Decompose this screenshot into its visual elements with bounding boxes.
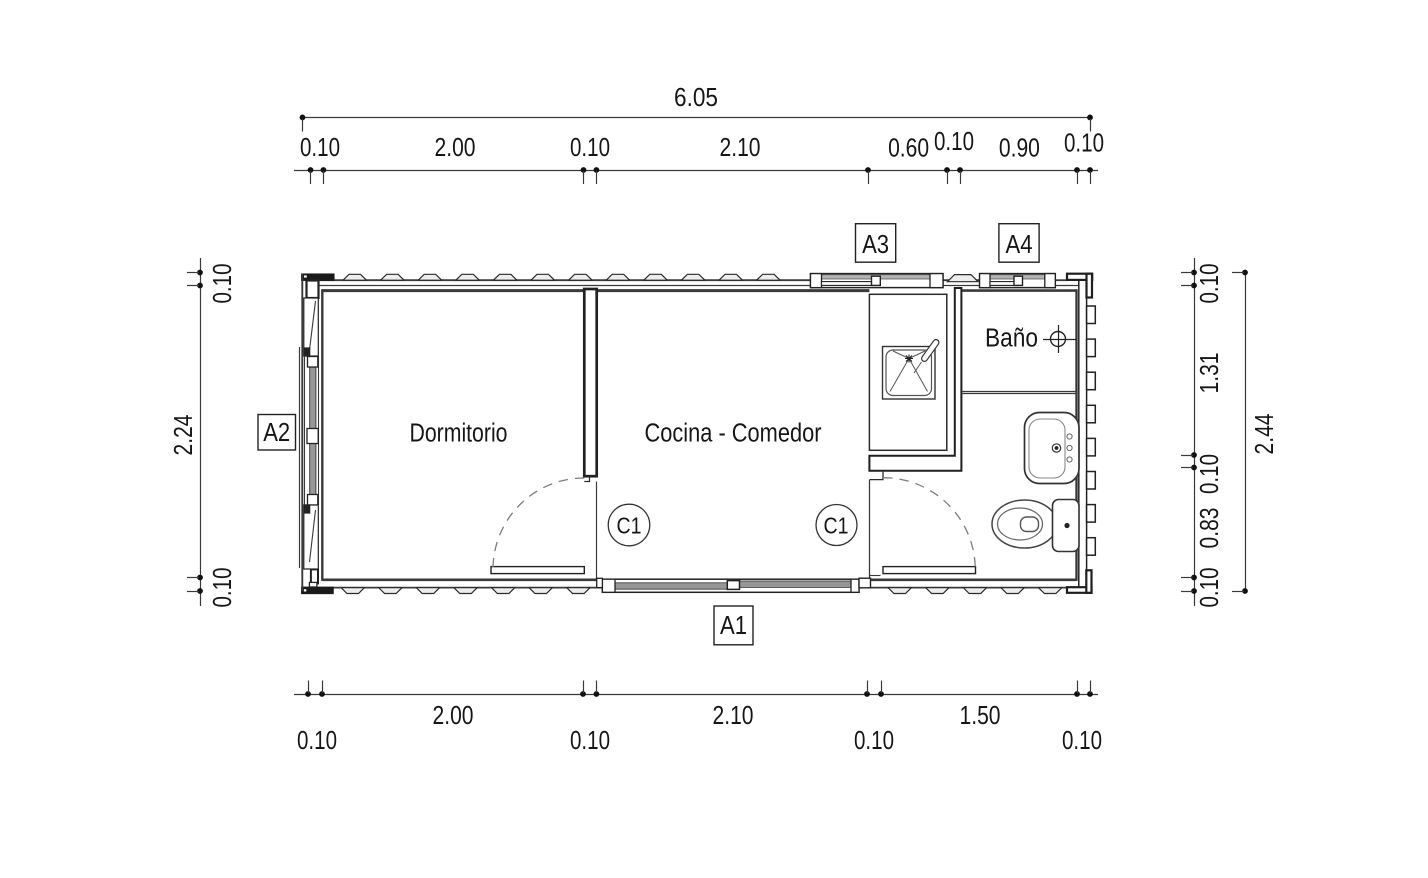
svg-text:2.24: 2.24	[170, 415, 198, 456]
svg-text:0.10: 0.10	[209, 568, 237, 608]
svg-text:0.10: 0.10	[570, 134, 610, 162]
svg-text:0.10: 0.10	[1196, 264, 1224, 304]
svg-text:0.60: 0.60	[888, 135, 929, 163]
svg-text:A4: A4	[1006, 231, 1033, 259]
svg-text:6.05: 6.05	[674, 84, 718, 112]
svg-text:Baño: Baño	[985, 325, 1038, 353]
svg-text:0.10: 0.10	[570, 727, 610, 755]
svg-text:1.50: 1.50	[960, 702, 1001, 730]
svg-text:0.83: 0.83	[1196, 508, 1224, 549]
svg-text:2.10: 2.10	[720, 134, 761, 162]
svg-text:0.90: 0.90	[999, 135, 1040, 163]
svg-text:2.10: 2.10	[713, 702, 754, 730]
svg-text:A2: A2	[263, 419, 290, 447]
svg-text:0.10: 0.10	[1196, 454, 1224, 494]
svg-text:A3: A3	[862, 231, 889, 259]
svg-text:0.10: 0.10	[1062, 727, 1102, 755]
svg-text:2.00: 2.00	[435, 134, 476, 162]
svg-text:0.10: 0.10	[934, 128, 974, 156]
svg-text:1.31: 1.31	[1196, 353, 1224, 394]
svg-text:Cocina - Comedor: Cocina - Comedor	[645, 420, 822, 448]
svg-text:2.44: 2.44	[1251, 414, 1279, 455]
svg-text:0.10: 0.10	[1196, 568, 1224, 608]
svg-text:Dormitorio: Dormitorio	[410, 420, 508, 448]
svg-text:C1: C1	[617, 513, 642, 539]
svg-text:2.00: 2.00	[433, 702, 474, 730]
svg-text:C1: C1	[824, 513, 849, 539]
svg-text:0.10: 0.10	[854, 727, 894, 755]
svg-text:A1: A1	[720, 612, 747, 640]
svg-text:0.10: 0.10	[209, 264, 237, 304]
svg-text:0.10: 0.10	[1064, 130, 1104, 158]
svg-text:0.10: 0.10	[297, 727, 337, 755]
svg-text:0.10: 0.10	[300, 134, 340, 162]
